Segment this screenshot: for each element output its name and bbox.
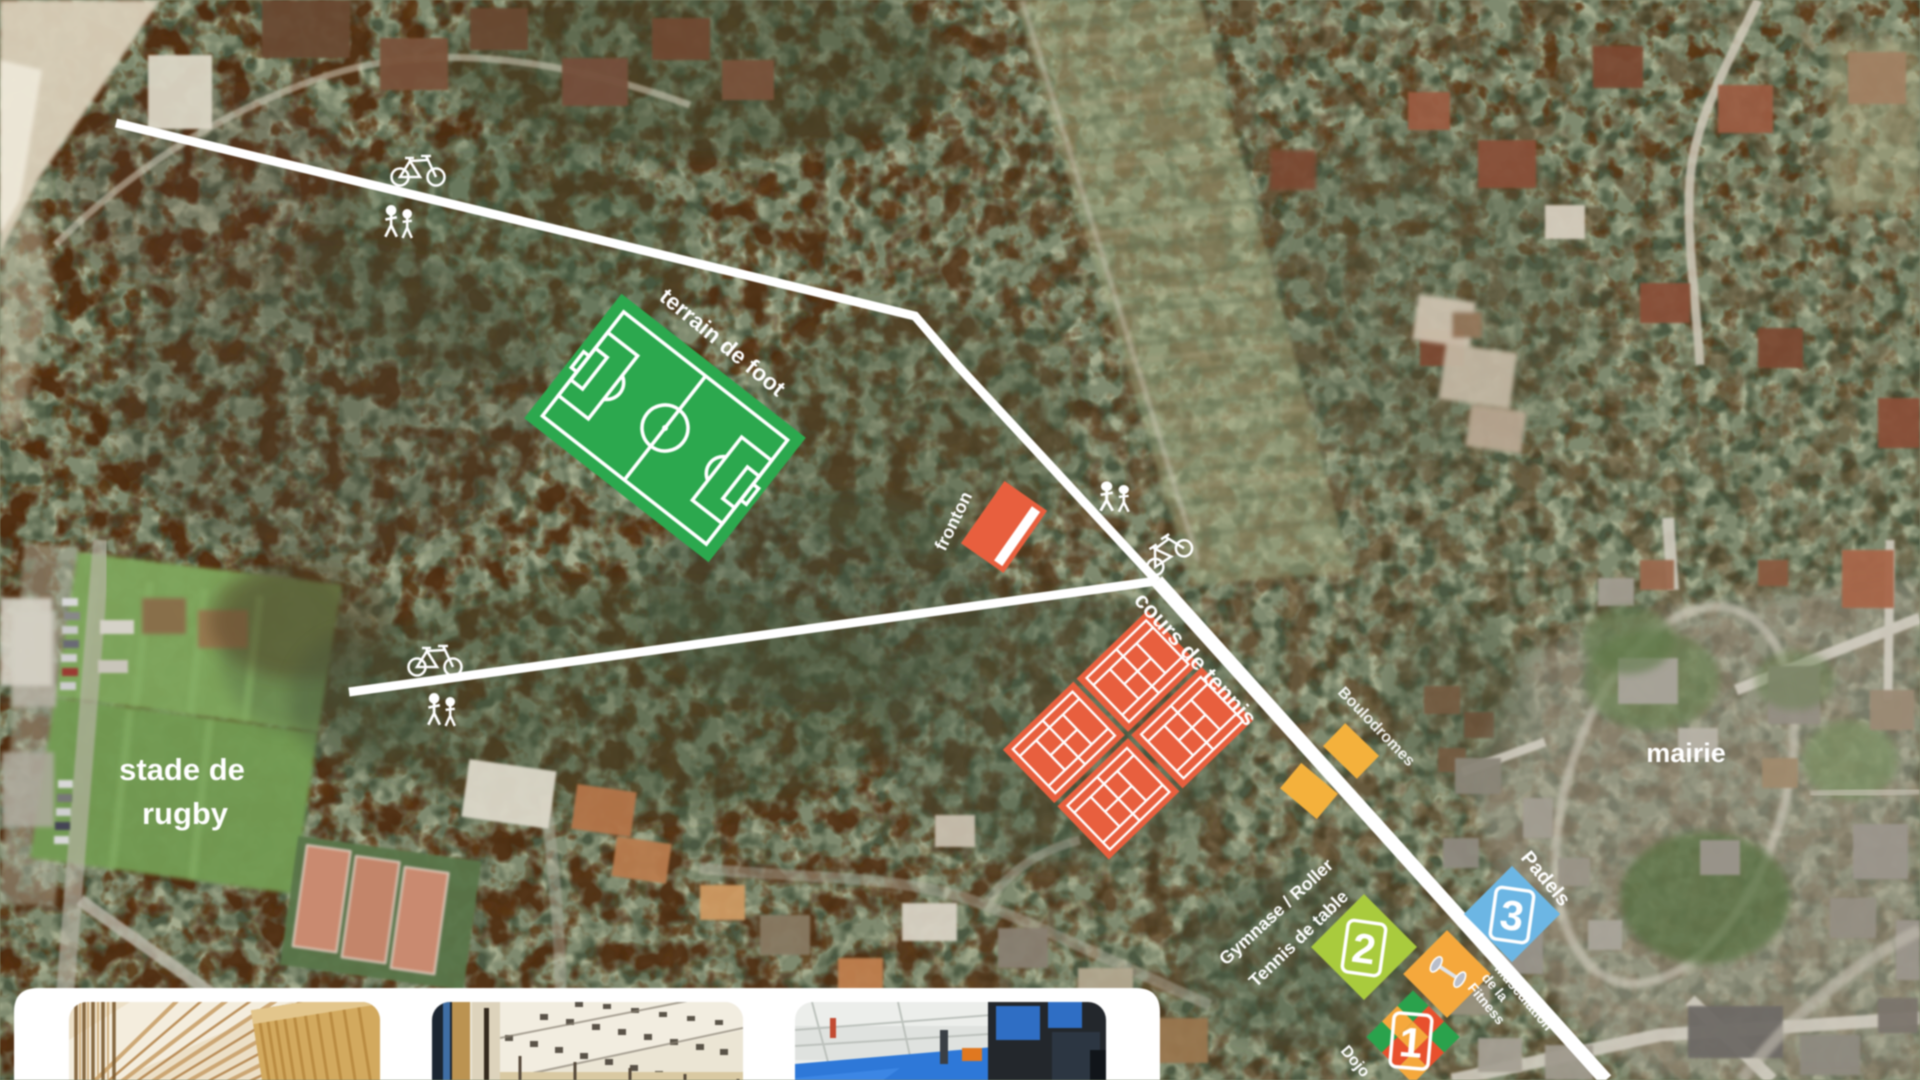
svg-text:1: 1 <box>1397 1018 1424 1067</box>
svg-text:mairie: mairie <box>1646 738 1726 768</box>
svg-text:stade de: stade de <box>119 752 245 787</box>
svg-text:rugby: rugby <box>142 796 229 831</box>
